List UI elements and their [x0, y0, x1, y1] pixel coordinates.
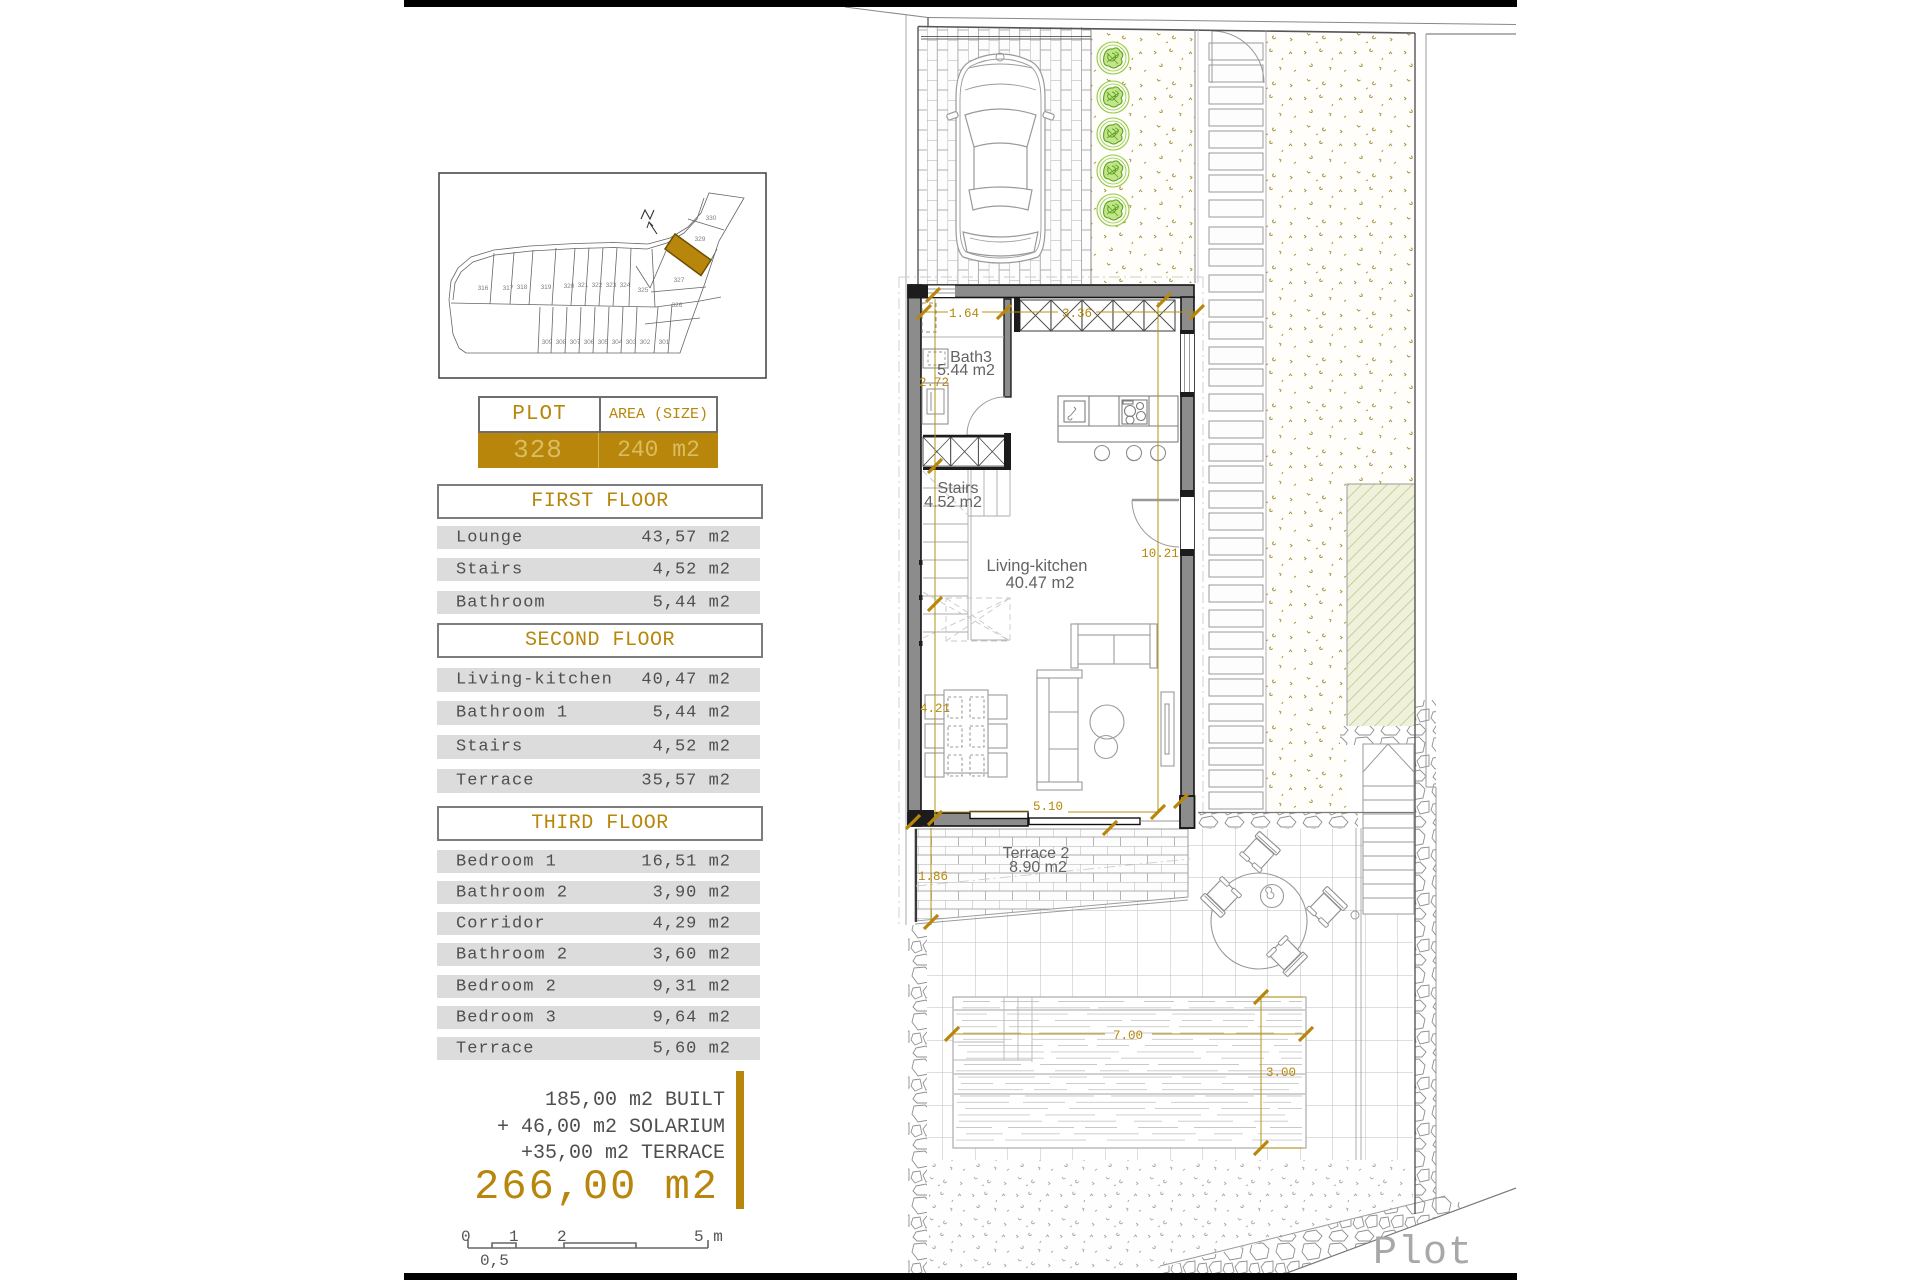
svg-text:329: 329 — [695, 236, 706, 243]
svg-text:309: 309 — [542, 339, 553, 346]
svg-text:323: 323 — [606, 282, 617, 289]
svg-text:4.21: 4.21 — [920, 702, 950, 716]
svg-text:319: 319 — [541, 284, 552, 291]
svg-text:40.47 m2: 40.47 m2 — [1006, 574, 1075, 592]
svg-text:306: 306 — [584, 339, 595, 346]
svg-text:Living-kitchen: Living-kitchen — [987, 557, 1088, 575]
svg-text:2.72: 2.72 — [919, 376, 949, 390]
svg-text:316: 316 — [478, 285, 489, 292]
svg-text:317: 317 — [503, 285, 514, 292]
svg-text:321: 321 — [578, 282, 589, 289]
svg-text:8.90 m2: 8.90 m2 — [1009, 859, 1067, 876]
svg-text:3.36: 3.36 — [1062, 307, 1092, 321]
svg-text:7.00: 7.00 — [1113, 1029, 1143, 1043]
svg-text:330: 330 — [706, 215, 717, 222]
svg-text:302: 302 — [640, 339, 651, 346]
svg-text:320: 320 — [564, 283, 575, 290]
svg-text:303: 303 — [626, 339, 637, 346]
svg-text:301: 301 — [659, 339, 670, 346]
svg-text:318: 318 — [517, 284, 528, 291]
svg-text:305: 305 — [598, 339, 609, 346]
svg-text:10.21: 10.21 — [1141, 547, 1179, 561]
svg-text:3.00: 3.00 — [1266, 1066, 1296, 1080]
svg-text:308: 308 — [556, 339, 567, 346]
svg-text:1.86: 1.86 — [918, 870, 948, 884]
svg-text:4.52 m2: 4.52 m2 — [924, 494, 982, 511]
svg-text:1.64: 1.64 — [949, 307, 979, 321]
svg-text:322: 322 — [592, 282, 603, 289]
svg-text:Plot: Plot — [1373, 1231, 1473, 1276]
svg-text:5.10: 5.10 — [1033, 800, 1063, 814]
svg-text:304: 304 — [612, 339, 623, 346]
svg-text:324: 324 — [620, 282, 631, 289]
svg-text:307: 307 — [570, 339, 581, 346]
svg-text:325: 325 — [638, 287, 649, 294]
svg-text:326: 326 — [672, 302, 683, 309]
svg-text:327: 327 — [674, 277, 685, 284]
